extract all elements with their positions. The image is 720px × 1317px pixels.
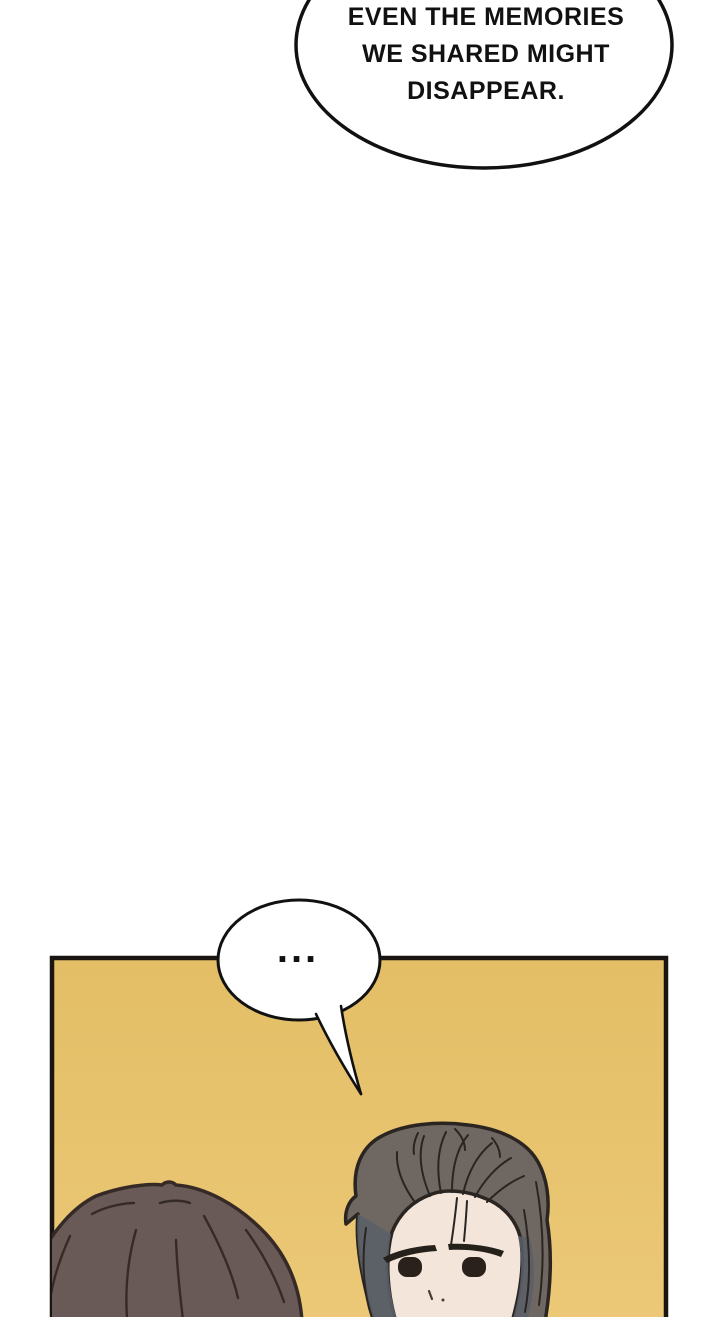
speech-line-2: WE SHARED MIGHT: [362, 40, 610, 68]
man-left-eye: [398, 1257, 422, 1277]
ellipsis-text: ...: [277, 927, 319, 971]
speech-line-3: DISAPPEAR.: [407, 77, 565, 105]
speech-line-1: EVEN THE MEMORIES: [348, 3, 625, 31]
comic-artwork: ... EVEN THE MEMORIES WE SHARED MIGHT DI…: [0, 0, 720, 1317]
man-right-eye: [462, 1257, 486, 1277]
character-man: [346, 1123, 551, 1317]
comic-page: ... EVEN THE MEMORIES WE SHARED MIGHT DI…: [0, 0, 720, 1317]
